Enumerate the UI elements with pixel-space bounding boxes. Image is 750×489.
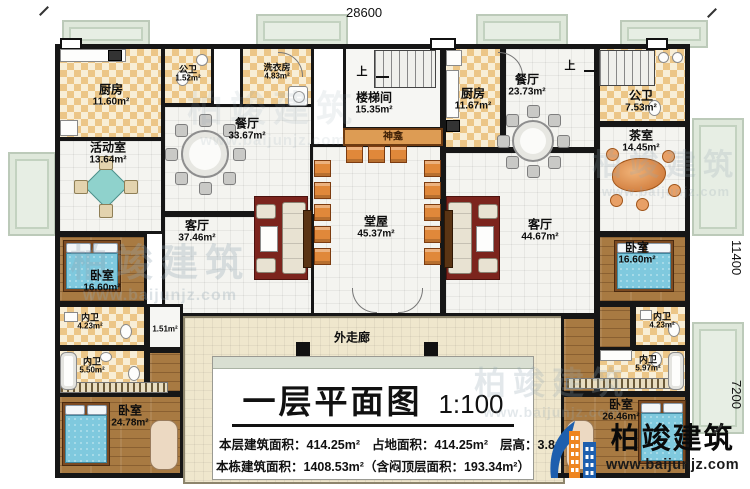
dining-chair	[199, 114, 212, 127]
room-area: 4.83m²	[263, 73, 290, 82]
stairs-up-label-right: 上	[565, 60, 576, 72]
hall-chair	[314, 226, 331, 243]
shrine-label: 神龛	[383, 131, 403, 142]
dining-table	[512, 120, 554, 162]
hall-chair	[424, 182, 441, 199]
wall-west	[55, 44, 60, 478]
stat-footprint-area: 占地面积：414.25m²	[372, 438, 488, 452]
room-area: 16.60m²	[618, 255, 655, 266]
sink-icon	[64, 312, 78, 322]
tv-cabinet	[444, 210, 453, 268]
room-name: 厨房	[455, 88, 492, 101]
bed	[62, 402, 110, 466]
dimension-right-lower: 7200	[729, 380, 744, 409]
bath-counter	[600, 350, 632, 361]
porch-right-upper	[692, 118, 744, 236]
bathtub-icon	[60, 352, 77, 390]
floor-plan-canvas: 厨房 11.60m² 公卫 1.52m² 洗衣房 4.83m² 餐厅 33.67…	[0, 0, 750, 489]
porch-top-2	[256, 14, 348, 48]
room-area: 23.73m²	[508, 87, 545, 98]
dining-chair	[506, 114, 519, 127]
room-label-outer-corridor: 外走廊	[334, 331, 370, 344]
toilet-icon	[128, 366, 140, 381]
hall-chair	[424, 160, 441, 177]
room-label-kitchen-left: 厨房 11.60m²	[93, 84, 130, 109]
tea-stool	[662, 150, 675, 163]
dining-chair	[199, 182, 212, 195]
room-name: 餐厅	[228, 118, 265, 131]
room-name: 茶室	[622, 130, 659, 143]
room-label-bath-right-2: 内卫 5.97m²	[635, 354, 660, 373]
bed-mattress	[65, 415, 107, 463]
bed-pillow	[93, 243, 117, 253]
chair	[99, 204, 113, 218]
carpet-runner	[566, 378, 676, 389]
room-area: 37.46m²	[178, 233, 215, 244]
hall-chair	[346, 146, 363, 163]
room-name: 餐厅	[508, 74, 545, 87]
room-label-tea-room: 茶室 14.45m²	[622, 130, 659, 155]
hall-chair	[390, 146, 407, 163]
plan-scale: 1:100	[438, 389, 503, 419]
plan-stats-line-2: 本栋建筑面积：1408.53m²（含闷顶层面积：193.34m²）	[213, 456, 533, 475]
room-area: 45.37m²	[357, 229, 394, 240]
coffee-table	[260, 226, 278, 252]
room-area: 44.67m²	[521, 232, 558, 243]
room-area: 14.45m²	[622, 143, 659, 154]
dining-chair	[548, 156, 561, 169]
hall-chair	[314, 204, 331, 221]
tea-stool	[636, 198, 649, 211]
chair	[124, 180, 138, 194]
brand-logo-icon	[544, 418, 600, 480]
dimension-tick	[707, 8, 717, 18]
bed-pillow	[66, 243, 90, 253]
sink-icon	[658, 52, 669, 63]
stairs-up-label-left: 上	[357, 66, 368, 78]
dimension-top: 28600	[346, 5, 382, 20]
stove-icon	[108, 50, 122, 61]
room-area: 26.46m²	[602, 412, 639, 423]
up-text: 上	[357, 66, 368, 78]
room-area: 7.53m²	[625, 103, 657, 114]
hall-chair	[314, 182, 331, 199]
washing-machine-icon	[288, 86, 308, 106]
stairs-up-tick	[584, 70, 597, 72]
column	[296, 342, 310, 356]
room-name: 客厅	[521, 219, 558, 232]
room-name: 外走廊	[334, 331, 370, 344]
room-name: 卧室	[602, 399, 639, 412]
bed-pillow	[87, 405, 107, 415]
armchair	[256, 258, 276, 273]
hall-chair	[424, 248, 441, 265]
room-area: 24.78m²	[111, 418, 148, 429]
room-label-living-right: 客厅 44.67m²	[521, 219, 558, 244]
title-block: 一层平面图1:100 本层建筑面积：414.25m²占地面积：414.25m²层…	[212, 356, 534, 480]
dining-chair	[557, 135, 570, 148]
room-label-laundry: 洗衣房 4.83m²	[263, 62, 290, 81]
toilet-icon	[120, 324, 132, 339]
room-name: 活动室	[89, 142, 126, 155]
room-closet-right	[597, 304, 633, 350]
room-name: 客厅	[178, 220, 215, 233]
room-label-bedroom-left-2: 卧室 24.78m²	[111, 405, 148, 430]
room-area: 4.23m²	[77, 323, 102, 332]
tea-stool	[668, 184, 681, 197]
chair	[74, 180, 88, 194]
room-name: 卧室	[618, 242, 655, 255]
tea-stool	[610, 194, 623, 207]
room-label-closet: 1.51m²	[152, 326, 177, 335]
hall-chair	[368, 146, 385, 163]
room-label-kitchen-right: 厨房 11.67m²	[455, 88, 492, 113]
room-area: 15.35m²	[355, 105, 392, 116]
room-label-dining-right: 餐厅 23.73m²	[508, 74, 545, 99]
room-label-public-bath-left: 公卫 1.52m²	[175, 64, 200, 83]
dining-chair	[175, 172, 188, 185]
bed-pillow	[663, 403, 683, 413]
room-label-dining-left: 餐厅 33.67m²	[228, 118, 265, 143]
room-name: 堂屋	[357, 216, 394, 229]
room-label-bath-left-1: 内卫 4.23m²	[77, 312, 102, 331]
hall-chair	[314, 160, 331, 177]
hall-chair	[314, 248, 331, 265]
room-label-main-hall: 堂屋 45.37m²	[357, 216, 394, 241]
column	[424, 342, 438, 356]
plan-title: 一层平面图	[242, 383, 422, 420]
sink-icon	[672, 52, 683, 63]
room-label-bath-right-1: 内卫 4.23m²	[649, 311, 674, 330]
room-area: 1.51m²	[152, 326, 177, 335]
stove-icon	[446, 120, 460, 132]
dining-chair	[165, 148, 178, 161]
room-area: 13.64m²	[89, 155, 126, 166]
room-area: 11.67m²	[455, 101, 492, 112]
chaise-lounge	[150, 420, 178, 470]
dining-chair	[527, 165, 540, 178]
dining-chair	[548, 114, 561, 127]
room-label-stairwell: 楼梯间 15.35m²	[355, 92, 392, 117]
room-area: 1.52m²	[175, 75, 200, 84]
room-area: 5.97m²	[635, 365, 660, 374]
title-block-band	[213, 357, 533, 369]
wall-south-left-wing	[55, 473, 183, 478]
tea-stool	[606, 148, 619, 161]
plan-stats-line-1: 本层建筑面积：414.25m²占地面积：414.25m²层高：3.8m	[213, 434, 533, 453]
bed-pillow	[65, 405, 85, 415]
room-area: 4.23m²	[649, 322, 674, 331]
dimension-tick	[39, 6, 49, 16]
armchair	[256, 204, 276, 219]
room-name: 公卫	[625, 90, 657, 103]
brand-text: 柏竣建筑 www.baijunjz.com	[606, 425, 739, 473]
room-area: 5.50m²	[79, 367, 104, 376]
stairs-left	[374, 50, 436, 88]
room-label-bedroom-right-2: 卧室 26.46m²	[602, 399, 639, 424]
dining-chair	[233, 148, 246, 161]
dimension-right-upper: 11400	[729, 240, 744, 275]
bed-pillow	[641, 403, 661, 413]
room-name: 神龛	[383, 131, 403, 142]
up-text: 上	[565, 60, 576, 72]
brand-name: 柏竣建筑	[606, 425, 739, 454]
fridge-icon	[60, 120, 78, 136]
tv-cabinet	[303, 210, 312, 268]
bathtub-icon	[668, 352, 684, 390]
room-area: 33.67m²	[228, 131, 265, 142]
dining-chair	[527, 105, 540, 118]
fridge-icon	[446, 50, 462, 66]
stairs-up-tick	[376, 76, 389, 78]
flue-stub-center	[430, 38, 456, 50]
room-area: 16.60m²	[83, 283, 120, 294]
hall-chair	[424, 226, 441, 243]
room-name: 厨房	[93, 84, 130, 97]
room-area: 11.60m²	[93, 97, 130, 108]
room-label-public-bath-right: 公卫 7.53m²	[625, 90, 657, 115]
brand-url: www.baijunjz.com	[606, 457, 739, 473]
room-name: 卧室	[83, 270, 120, 283]
room-label-bedroom-right-1: 卧室 16.60m²	[618, 242, 655, 267]
brand-logo: 柏竣建筑 www.baijunjz.com	[544, 414, 746, 484]
room-label-bath-left-2: 内卫 5.50m²	[79, 356, 104, 375]
armchair	[478, 258, 498, 273]
dining-chair	[223, 172, 236, 185]
dining-chair	[506, 156, 519, 169]
flue-stub-right	[646, 38, 668, 50]
dining-chair	[497, 135, 510, 148]
room-label-activity: 活动室 13.64m²	[89, 142, 126, 167]
room-name: 楼梯间	[355, 92, 392, 105]
room-label-living-left: 客厅 37.46m²	[178, 220, 215, 245]
dining-chair	[175, 124, 188, 137]
hall-chair	[424, 204, 441, 221]
dining-table	[181, 130, 229, 178]
porch-top-3	[476, 14, 568, 48]
washer-door	[293, 91, 305, 103]
stairs-right	[599, 50, 655, 86]
plan-title-row: 一层平面图1:100	[232, 371, 513, 427]
room-label-bedroom-left-1: 卧室 16.60m²	[83, 270, 120, 295]
room-name: 卧室	[111, 405, 148, 418]
armchair	[478, 204, 498, 219]
wall-north	[55, 44, 690, 49]
porch-left	[8, 152, 56, 236]
stat-floor-area: 本层建筑面积：414.25m²	[219, 438, 360, 452]
coffee-table	[476, 226, 494, 252]
